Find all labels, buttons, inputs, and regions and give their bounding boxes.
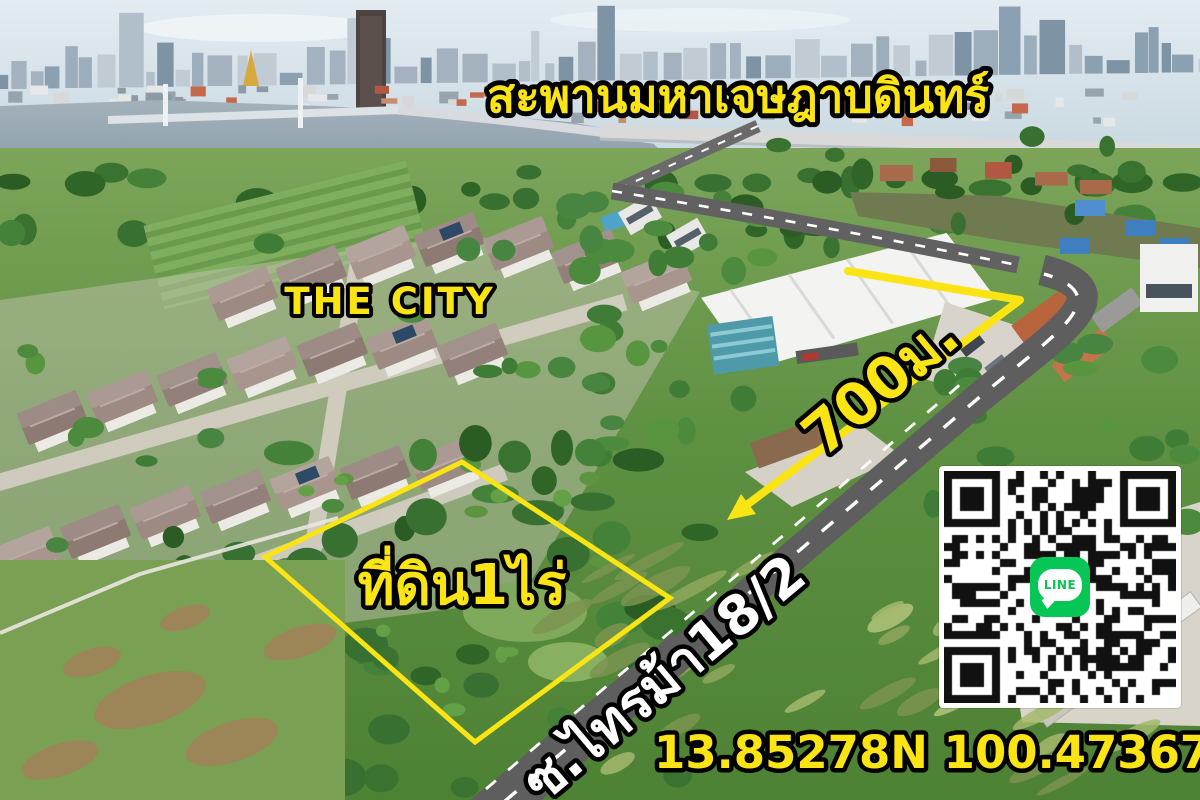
bridge-pylon	[163, 84, 168, 126]
line-qr-code: LINE	[939, 466, 1181, 708]
plot-area-label: ที่ดิน1ไร่	[358, 545, 567, 618]
cloud	[550, 8, 850, 32]
bridge-pylon	[298, 78, 303, 128]
line-logo-icon: LINE	[1030, 557, 1090, 617]
line-logo-label: LINE	[1044, 569, 1076, 601]
coordinates-label: 13.85278N 100.47367E	[654, 726, 1200, 779]
tall-tower-face	[360, 16, 382, 114]
aerial-photo: สะพานมหาเจษฎาบดินทร์ THE CITY 700ม. ที่ด…	[0, 0, 1200, 800]
estate-name-label: THE CITY	[284, 280, 495, 323]
line-speech-bubble-icon: LINE	[1038, 569, 1082, 601]
cloud	[140, 14, 380, 42]
bridge-name-label: สะพานมหาเจษฎาบดินทร์	[487, 69, 989, 123]
